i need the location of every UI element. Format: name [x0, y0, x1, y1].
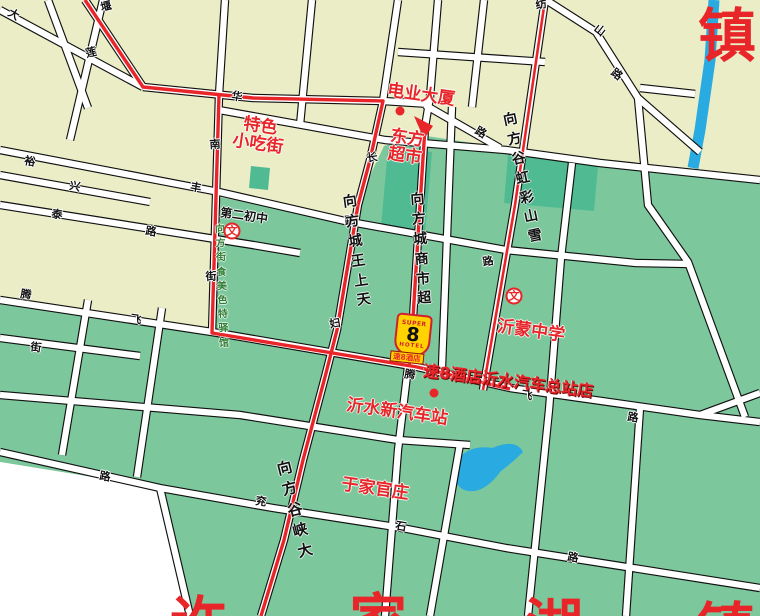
map-canvas[interactable]: 大堰莲华南裕兴丰泰路腾街飞街长路妇路山路纺路腾飞路路兖石路天上王城方向超市商城方…	[0, 0, 760, 616]
super8-logo-bottom-text: HOTEL	[399, 342, 425, 350]
teal-block	[249, 166, 270, 190]
map-geometry	[0, 0, 760, 616]
